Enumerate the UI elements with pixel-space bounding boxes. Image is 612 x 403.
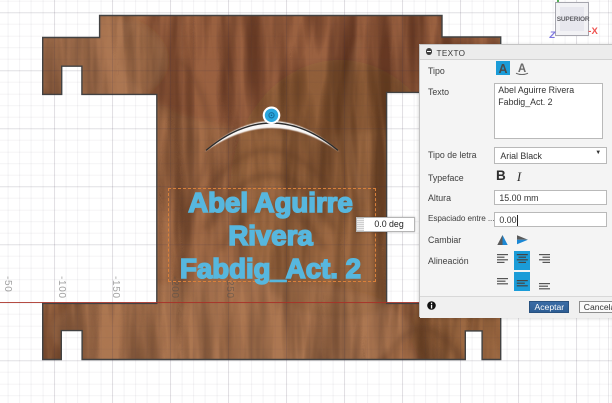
svg-text:A: A — [518, 63, 526, 75]
svg-text:A: A — [499, 62, 508, 76]
